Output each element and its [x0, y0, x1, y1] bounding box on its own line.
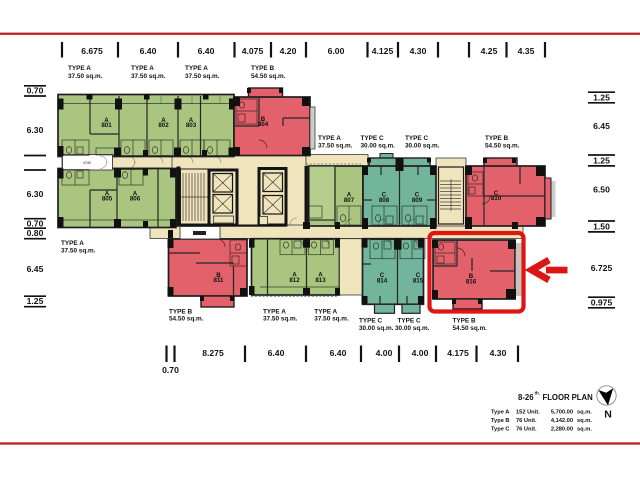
svg-text:30.00 sq.m.: 30.00 sq.m.: [359, 325, 394, 332]
svg-text:TYPE A: TYPE A: [131, 65, 154, 72]
svg-text:37.50 sq.m.: 37.50 sq.m.: [314, 316, 349, 323]
svg-text:4.25: 4.25: [481, 46, 498, 56]
svg-text:Type A: Type A: [491, 410, 509, 416]
svg-text:0.80: 0.80: [27, 228, 44, 238]
svg-text:0.70: 0.70: [27, 86, 44, 96]
svg-text:805: 805: [102, 196, 113, 203]
svg-text:811: 811: [214, 277, 225, 284]
svg-text:6.40: 6.40: [198, 46, 215, 56]
svg-text:TYPE C: TYPE C: [359, 317, 382, 324]
svg-text:152 Unit.: 152 Unit.: [516, 410, 540, 416]
svg-text:803: 803: [186, 122, 197, 129]
svg-text:0.975: 0.975: [591, 297, 613, 307]
svg-text:812: 812: [289, 277, 300, 284]
svg-text:TYPE A: TYPE A: [68, 65, 91, 72]
svg-text:N: N: [604, 409, 612, 421]
svg-text:6.45: 6.45: [593, 121, 610, 131]
svg-text:4.175: 4.175: [447, 348, 469, 358]
svg-text:30.00 sq.m.: 30.00 sq.m.: [405, 143, 440, 150]
svg-text:4.30: 4.30: [490, 348, 507, 358]
svg-text:Type C: Type C: [491, 427, 510, 433]
svg-text:0.70: 0.70: [162, 365, 179, 375]
svg-text:TYPE C: TYPE C: [405, 135, 428, 142]
svg-text:th.: th.: [535, 391, 540, 396]
svg-text:4.00: 4.00: [376, 348, 393, 358]
svg-text:4.00: 4.00: [412, 348, 429, 358]
svg-text:sq.m.: sq.m.: [577, 427, 592, 433]
svg-text:6.00: 6.00: [328, 46, 345, 56]
svg-text:TYPE A: TYPE A: [314, 308, 337, 315]
svg-text:5,700.00: 5,700.00: [551, 410, 573, 416]
svg-text:sq.m.: sq.m.: [577, 418, 592, 424]
svg-text:6.50: 6.50: [593, 185, 610, 195]
svg-text:802: 802: [158, 122, 169, 129]
svg-text:808: 808: [379, 197, 390, 204]
svg-text:Type B: Type B: [491, 418, 510, 424]
svg-text:4.35: 4.35: [518, 46, 535, 56]
svg-text:TYPE C: TYPE C: [398, 317, 421, 324]
svg-text:816: 816: [466, 278, 477, 285]
svg-text:30.00 sq.m.: 30.00 sq.m.: [361, 143, 396, 150]
svg-text:FLOOR PLAN: FLOOR PLAN: [543, 393, 594, 402]
svg-text:6.30: 6.30: [27, 125, 44, 135]
svg-text:TYPE A: TYPE A: [263, 308, 286, 315]
svg-text:37.50 sq.m.: 37.50 sq.m.: [61, 248, 96, 255]
svg-text:VOID: VOID: [83, 161, 91, 165]
svg-text:TYPE B: TYPE B: [453, 317, 476, 324]
svg-text:6.40: 6.40: [140, 46, 157, 56]
svg-text:TYPE A: TYPE A: [61, 240, 84, 247]
svg-text:TYPE B: TYPE B: [485, 135, 508, 142]
svg-text:TYPE A: TYPE A: [318, 135, 341, 142]
svg-text:1.25: 1.25: [593, 155, 610, 165]
svg-text:TYPE A: TYPE A: [185, 65, 208, 72]
svg-text:8-26: 8-26: [518, 393, 534, 402]
svg-text:1.25: 1.25: [593, 92, 610, 102]
svg-text:4.20: 4.20: [280, 46, 297, 56]
svg-text:54.50 sq.m.: 54.50 sq.m.: [485, 143, 520, 150]
svg-text:806: 806: [130, 196, 141, 203]
svg-text:6.40: 6.40: [330, 348, 347, 358]
svg-text:814: 814: [377, 277, 388, 284]
svg-text:4.30: 4.30: [410, 46, 427, 56]
svg-text:37.50 sq.m.: 37.50 sq.m.: [263, 316, 298, 323]
svg-text:807: 807: [344, 197, 355, 204]
svg-text:6.30: 6.30: [27, 189, 44, 199]
svg-text:37.50 sq.m.: 37.50 sq.m.: [185, 73, 220, 80]
svg-text:TYPE B: TYPE B: [251, 65, 274, 72]
svg-text:804: 804: [258, 121, 269, 128]
svg-text:801: 801: [101, 122, 112, 129]
svg-text:1.50: 1.50: [593, 222, 610, 232]
svg-text:54.50 sq.m.: 54.50 sq.m.: [169, 316, 204, 323]
svg-text:6.675: 6.675: [81, 46, 103, 56]
svg-text:8.275: 8.275: [202, 348, 224, 358]
svg-text:sq.m.: sq.m.: [577, 410, 592, 416]
svg-text:810: 810: [491, 195, 502, 202]
svg-text:76 Unit.: 76 Unit.: [516, 427, 537, 433]
svg-text:30.00 sq.m.: 30.00 sq.m.: [395, 325, 430, 332]
svg-text:4,142.00: 4,142.00: [551, 418, 573, 424]
svg-text:54.50 sq.m.: 54.50 sq.m.: [251, 73, 286, 80]
svg-text:1.25: 1.25: [27, 296, 44, 306]
svg-text:54.50 sq.m.: 54.50 sq.m.: [453, 325, 488, 332]
svg-text:2,280.00: 2,280.00: [551, 427, 573, 433]
svg-text:TYPE C: TYPE C: [361, 135, 384, 142]
svg-text:37.50 sq.m.: 37.50 sq.m.: [68, 73, 103, 80]
svg-text:6.725: 6.725: [591, 263, 613, 273]
svg-text:809: 809: [412, 197, 423, 204]
svg-text:6.45: 6.45: [27, 264, 44, 274]
svg-text:813: 813: [315, 277, 326, 284]
svg-text:4.125: 4.125: [372, 46, 394, 56]
svg-text:0.70: 0.70: [27, 219, 44, 229]
svg-text:37.50 sq.m.: 37.50 sq.m.: [131, 73, 166, 80]
svg-text:815: 815: [413, 277, 424, 284]
svg-text:37.50 sq.m.: 37.50 sq.m.: [318, 143, 353, 150]
svg-text:TYPE B: TYPE B: [169, 308, 192, 315]
svg-text:4.075: 4.075: [242, 46, 264, 56]
svg-text:6.40: 6.40: [268, 348, 285, 358]
svg-text:76 Unit.: 76 Unit.: [516, 418, 537, 424]
